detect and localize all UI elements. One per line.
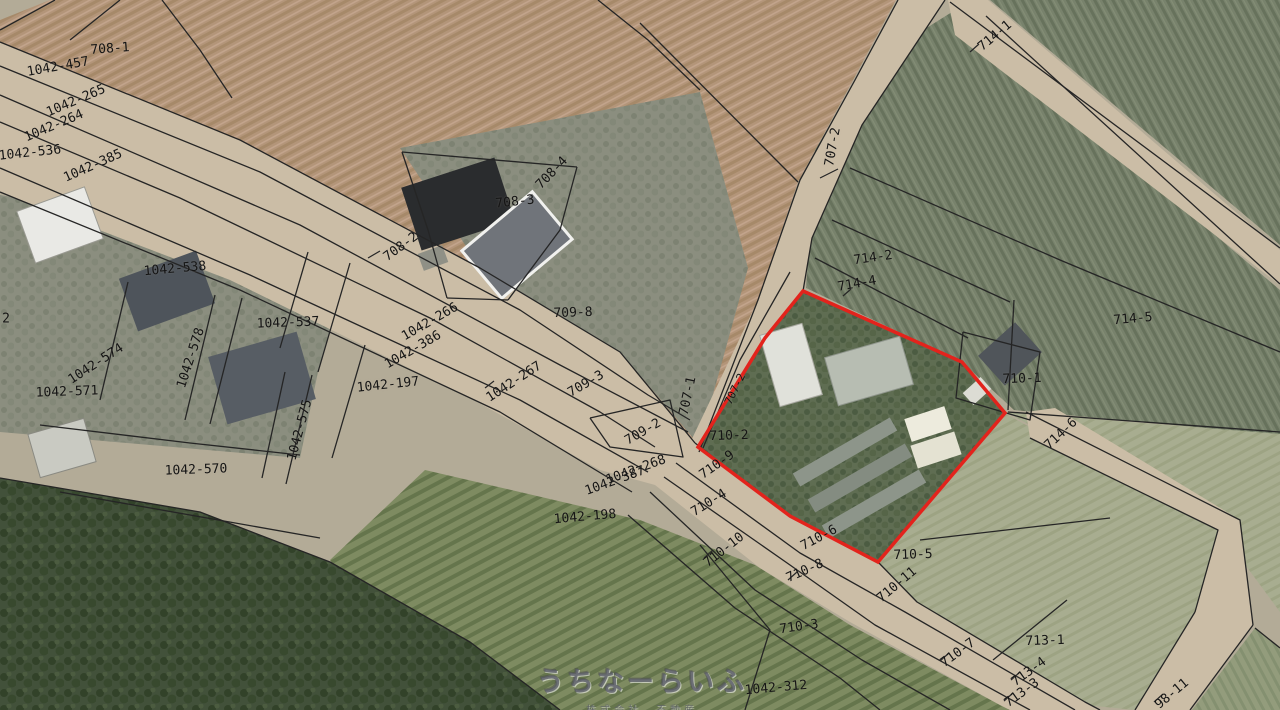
parcel-label-708-1: 708-1: [90, 40, 130, 58]
boundary-line: [332, 345, 365, 458]
parcel-label-710-2: 710-2: [709, 428, 749, 444]
aerial-cadastral-map: 708-11042-4571042-2651042-2641042-536104…: [0, 0, 1280, 710]
parcel-label-713-1: 713-1: [1025, 633, 1065, 649]
parcel-label-709-8: 709-8: [553, 305, 593, 321]
parcel-label-2: 2: [2, 312, 10, 327]
parcel-label-1042-537: 1042-537: [256, 314, 319, 331]
parcel-label-1042-571: 1042-571: [35, 383, 98, 400]
parcel-label-1042-570: 1042-570: [164, 461, 227, 478]
parcel-label-710-1: 710-1: [1002, 371, 1042, 387]
parcel-label-710-5: 710-5: [893, 547, 933, 563]
